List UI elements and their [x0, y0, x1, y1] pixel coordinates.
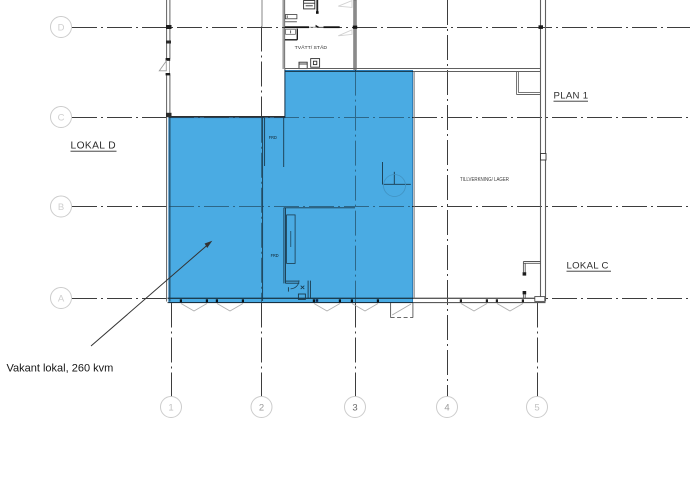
svg-text:4: 4 [444, 403, 449, 414]
svg-text:TVÄTT/ STÄD: TVÄTT/ STÄD [295, 44, 328, 51]
svg-text:C: C [58, 113, 65, 124]
svg-text:LOKAL D: LOKAL D [71, 141, 116, 152]
svg-text:2: 2 [259, 403, 264, 414]
svg-text:1: 1 [168, 403, 173, 414]
svg-text:Vakant lokal, 260 kvm: Vakant lokal, 260 kvm [7, 363, 114, 375]
svg-text:PLAN 1: PLAN 1 [554, 91, 589, 102]
svg-text:TILLVERKNING/ LAGER: TILLVERKNING/ LAGER [460, 177, 509, 183]
svg-text:D: D [58, 23, 65, 34]
svg-text:A: A [58, 294, 65, 305]
svg-text:B: B [58, 202, 64, 213]
svg-text:LOKAL C: LOKAL C [567, 261, 609, 272]
svg-text:3: 3 [352, 403, 357, 414]
svg-text:5: 5 [534, 403, 539, 414]
